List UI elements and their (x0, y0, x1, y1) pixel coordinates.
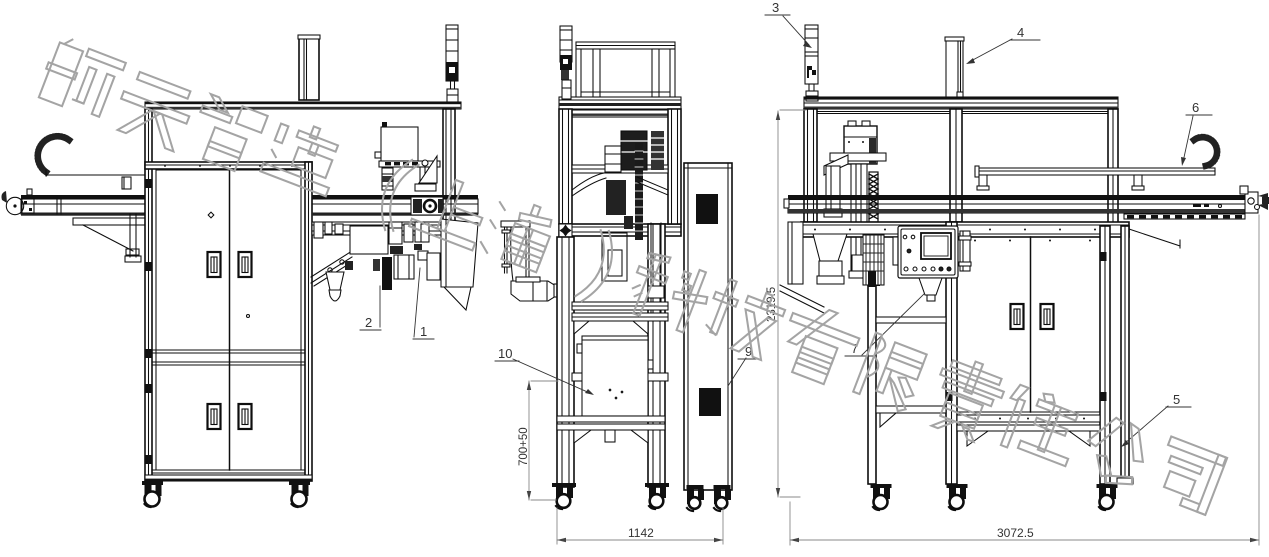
svg-text:6: 6 (1192, 100, 1199, 115)
svg-text:5: 5 (1173, 392, 1180, 407)
svg-text:700+50: 700+50 (518, 427, 530, 466)
svg-text:4: 4 (1017, 25, 1024, 40)
svg-text:2: 2 (365, 315, 372, 330)
svg-text:1: 1 (420, 324, 427, 339)
svg-text:1142: 1142 (628, 526, 654, 540)
svg-text:3072.5: 3072.5 (997, 526, 1034, 540)
svg-text:10: 10 (498, 346, 512, 361)
svg-text:3: 3 (772, 0, 779, 15)
